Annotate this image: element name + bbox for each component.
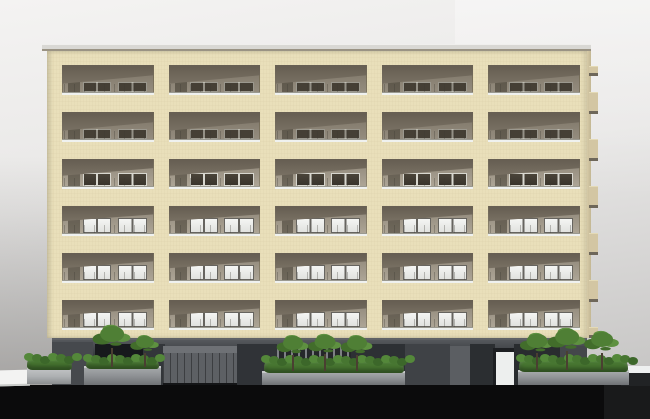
- railing-posts: [384, 84, 472, 92]
- balcony-recess: [382, 112, 474, 142]
- facade: [47, 51, 587, 338]
- panel-light-a: [450, 346, 470, 388]
- balcony-handrail: [488, 186, 580, 189]
- balcony-handrail: [382, 327, 474, 330]
- railing-posts: [170, 225, 258, 233]
- railing-posts: [277, 225, 365, 233]
- tree-foliage: [315, 335, 336, 349]
- balcony-handrail: [382, 280, 474, 283]
- balcony-handrail: [62, 92, 154, 95]
- balcony-recess: [275, 159, 367, 189]
- railing-posts: [64, 272, 152, 280]
- balcony-recess: [169, 159, 261, 189]
- street-shadow-band: [0, 385, 650, 419]
- balcony-handrail: [62, 139, 154, 142]
- railing-posts: [170, 272, 258, 280]
- balcony-handrail: [275, 280, 367, 283]
- railing-posts: [490, 178, 578, 186]
- balcony-recess: [488, 159, 580, 189]
- balcony-handrail: [488, 233, 580, 236]
- balcony-handrail: [488, 280, 580, 283]
- planter-right-box: [518, 370, 629, 385]
- side-balcony-tab: [589, 186, 598, 208]
- planter-center-box: [262, 371, 405, 385]
- balcony-handrail: [382, 139, 474, 142]
- balcony-recess: [382, 300, 474, 330]
- railing-posts: [277, 319, 365, 327]
- balcony-recess: [488, 112, 580, 142]
- railing-posts: [277, 131, 365, 139]
- tree-trunk: [356, 355, 358, 371]
- small-tree: [341, 336, 373, 371]
- balcony-recess: [275, 112, 367, 142]
- tree-trunk: [324, 354, 326, 371]
- tree-trunk: [111, 348, 113, 367]
- tree-trunk: [536, 353, 538, 370]
- balcony-recess: [382, 159, 474, 189]
- small-tree: [131, 336, 160, 367]
- shrub-bump: [628, 357, 638, 365]
- tree-foliage: [527, 334, 548, 348]
- panel-mid-a: [405, 344, 450, 388]
- railing-posts: [490, 319, 578, 327]
- balcony-handrail: [169, 233, 261, 236]
- railing-posts: [277, 272, 365, 280]
- side-balcony-tab: [589, 92, 598, 114]
- building-rendering: [0, 0, 650, 419]
- tree-foliage: [347, 336, 367, 350]
- garage-lintel: [163, 346, 237, 353]
- balcony-recess: [488, 206, 580, 236]
- garage-door: [163, 353, 237, 383]
- balcony-handrail: [169, 139, 261, 142]
- railing-posts: [170, 178, 258, 186]
- balcony-recess: [169, 253, 261, 283]
- side-balcony-tab: [589, 66, 598, 76]
- balcony-recess: [169, 206, 261, 236]
- balcony-handrail: [382, 186, 474, 189]
- balcony-handrail: [169, 327, 261, 330]
- balcony-handrail: [382, 233, 474, 236]
- balcony-handrail: [169, 92, 261, 95]
- balcony-recess: [488, 300, 580, 330]
- balcony-recess: [275, 206, 367, 236]
- railing-posts: [64, 178, 152, 186]
- balcony-handrail: [62, 186, 154, 189]
- balcony-recess: [169, 112, 261, 142]
- railing-posts: [170, 84, 258, 92]
- balcony-recess: [62, 112, 154, 142]
- shrub-bump: [72, 353, 82, 361]
- balcony-recess: [62, 253, 154, 283]
- railing-posts: [490, 225, 578, 233]
- balcony-handrail: [62, 233, 154, 236]
- balcony-recess: [382, 253, 474, 283]
- balcony-recess: [62, 206, 154, 236]
- left-boundary-wall: [0, 370, 30, 387]
- balcony-recess: [62, 65, 154, 95]
- railing-posts: [384, 272, 472, 280]
- railing-posts: [490, 272, 578, 280]
- balcony-handrail: [488, 139, 580, 142]
- tree-foliage: [591, 332, 613, 347]
- tree-trunk: [601, 353, 603, 370]
- railing-posts: [384, 319, 472, 327]
- balcony-recess: [275, 253, 367, 283]
- white-door: [496, 352, 514, 388]
- small-tree: [309, 335, 342, 371]
- side-balcony-tab: [589, 280, 598, 302]
- balcony-handrail: [62, 280, 154, 283]
- balcony-recess: [382, 206, 474, 236]
- railing-posts: [490, 84, 578, 92]
- side-balcony-tab: [589, 139, 598, 161]
- balcony-recess: [275, 300, 367, 330]
- balcony-handrail: [275, 139, 367, 142]
- small-tree: [93, 326, 131, 367]
- street-shadow-right: [604, 385, 650, 419]
- railing-posts: [64, 84, 152, 92]
- shrub-bump: [405, 355, 415, 363]
- balcony-handrail: [382, 92, 474, 95]
- small-tree: [585, 332, 620, 370]
- small-tree: [548, 329, 586, 370]
- planter-left-hedge: [27, 357, 72, 370]
- railing-posts: [277, 84, 365, 92]
- tree-trunk: [566, 351, 568, 370]
- balcony-recess: [62, 159, 154, 189]
- balcony-recess: [275, 65, 367, 95]
- railing-posts: [490, 131, 578, 139]
- balcony-handrail: [488, 92, 580, 95]
- tree-foliage: [100, 326, 124, 342]
- tree-trunk: [144, 353, 146, 367]
- railing-posts: [64, 131, 152, 139]
- side-balcony-tab: [589, 233, 598, 255]
- balcony-recess: [169, 300, 261, 330]
- railing-posts: [170, 319, 258, 327]
- balcony-recess: [488, 253, 580, 283]
- railing-posts: [64, 225, 152, 233]
- railing-posts: [384, 131, 472, 139]
- balcony-handrail: [275, 233, 367, 236]
- roof-parapet-cap: [42, 44, 591, 51]
- railing-posts: [170, 131, 258, 139]
- balcony-recess: [382, 65, 474, 95]
- balcony-handrail: [169, 186, 261, 189]
- railing-posts: [277, 178, 365, 186]
- balcony-recess: [488, 65, 580, 95]
- tree-foliage: [555, 329, 579, 345]
- tree-foliage: [283, 336, 303, 350]
- small-tree: [277, 336, 309, 371]
- railing-posts: [384, 225, 472, 233]
- railing-posts: [384, 178, 472, 186]
- balcony-handrail: [275, 92, 367, 95]
- panel-dark-d: [470, 344, 495, 388]
- tree-trunk: [292, 355, 294, 371]
- balcony-recess: [169, 65, 261, 95]
- tree-foliage: [136, 336, 154, 348]
- balcony-handrail: [275, 327, 367, 330]
- balcony-handrail: [275, 186, 367, 189]
- balcony-handrail: [169, 280, 261, 283]
